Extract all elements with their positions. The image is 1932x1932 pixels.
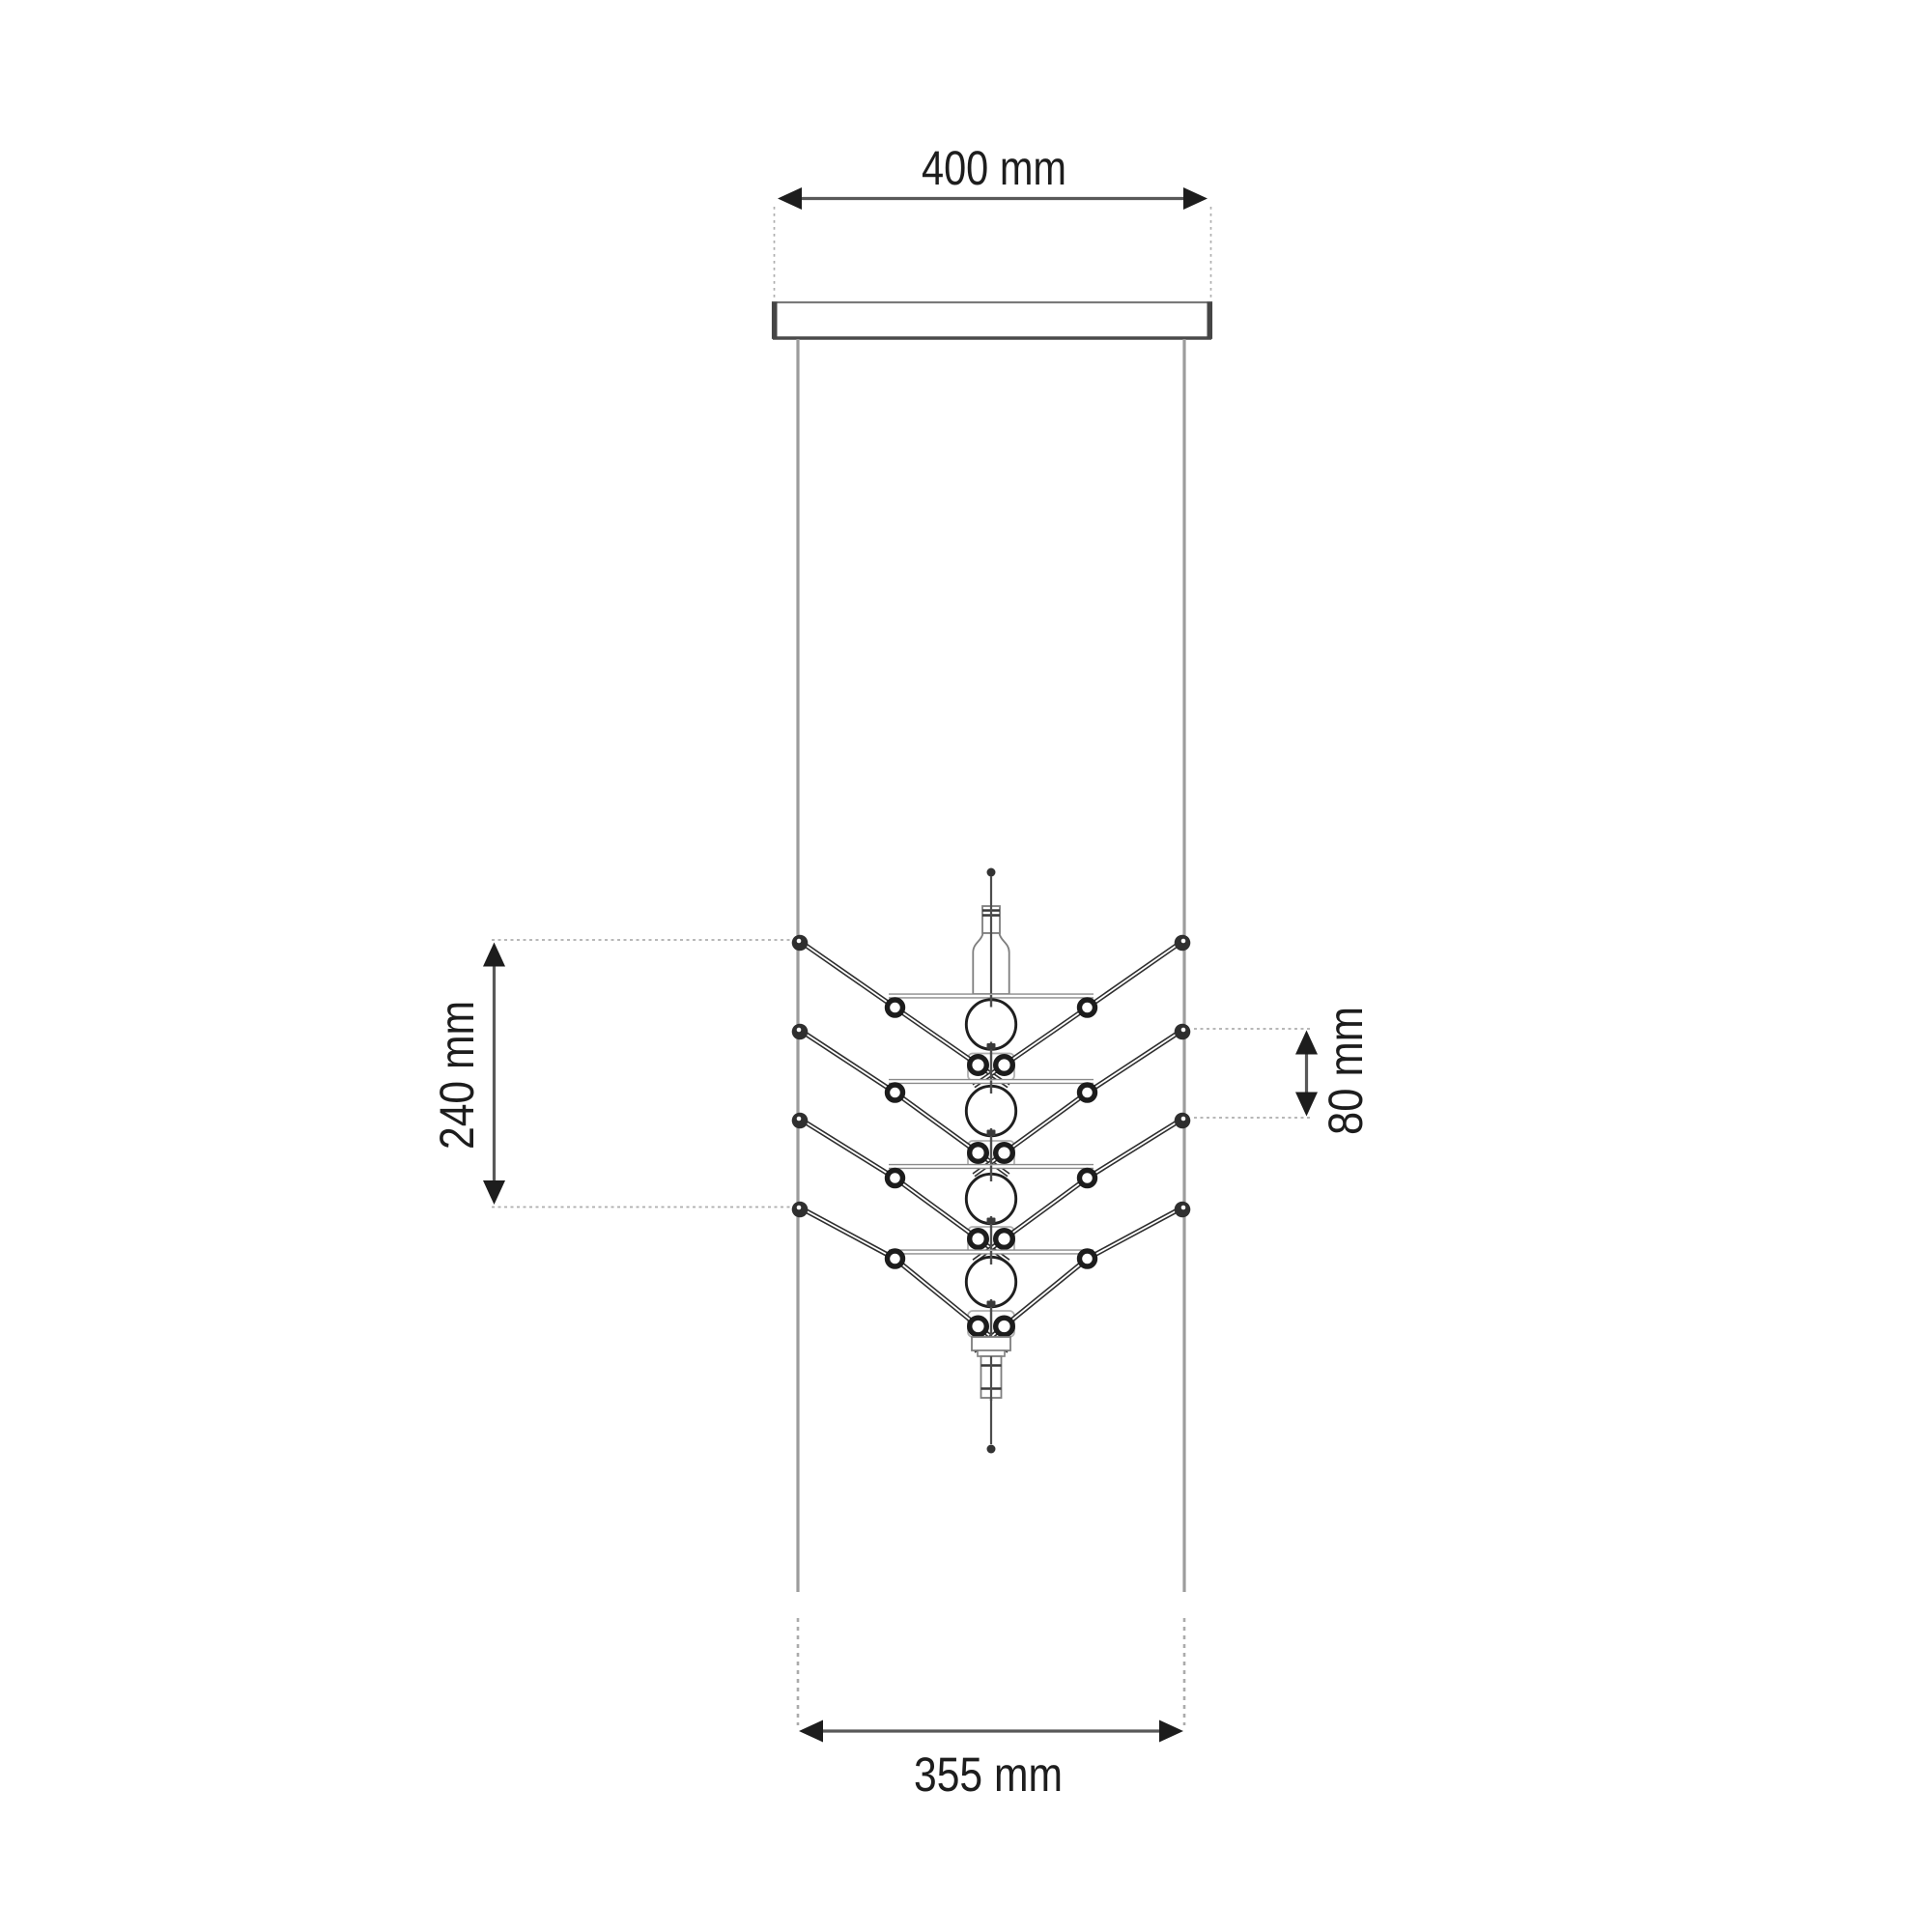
svg-text:400 mm: 400 mm: [922, 141, 1066, 195]
svg-text:240 mm: 240 mm: [430, 1001, 484, 1150]
svg-text:355 mm: 355 mm: [914, 1747, 1063, 1802]
svg-text:80 mm: 80 mm: [1319, 1007, 1373, 1135]
